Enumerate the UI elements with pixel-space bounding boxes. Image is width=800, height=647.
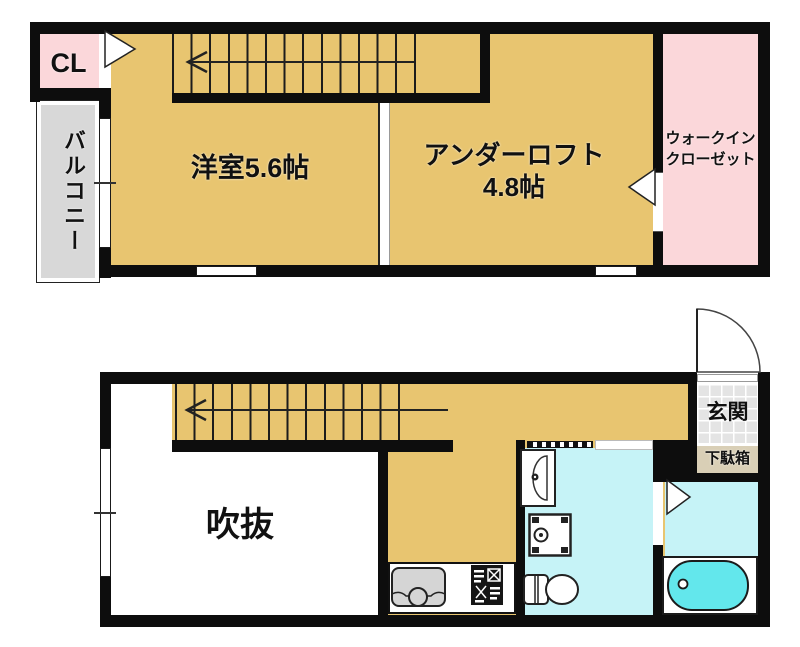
wall-wic (653, 232, 663, 265)
room-wic (663, 34, 758, 265)
label-bedroom: 洋室5.6帖 (130, 153, 370, 184)
accordion-door (527, 441, 593, 448)
stair-2f-wall (172, 93, 490, 103)
window-bedroom-south (196, 266, 257, 276)
label-balcony: バルコニー (54, 116, 86, 266)
wall (30, 22, 770, 34)
wall (758, 22, 770, 277)
wall (99, 248, 111, 278)
stair-1f-wall (172, 440, 453, 452)
kitchen-sink-icon (390, 566, 447, 608)
stair-2f-arrow (180, 48, 420, 76)
partition-bedroom-loft (378, 103, 390, 265)
wall (100, 577, 111, 615)
label-loft-line1: アンダーロフト (399, 141, 629, 171)
label-shoe-cabinet: 下駄箱 (693, 450, 762, 467)
bath-door-opening (653, 482, 663, 545)
cl-door-leaf-icon (102, 28, 138, 70)
floor-plan: CL バルコニー 洋室5.6帖 アンダーロフト 4.8帖 ウォークイン クローゼ… (0, 0, 800, 647)
bath-door-leaf-icon (663, 477, 693, 517)
stair-1f-arrow (180, 396, 452, 424)
wall (100, 372, 697, 384)
washing-machine-icon (528, 513, 572, 557)
washbasin-icon (520, 449, 556, 507)
label-cl: CL (38, 48, 99, 79)
window-tick (94, 512, 116, 514)
bathtub-icon (662, 556, 758, 615)
wall-void-right (378, 440, 388, 615)
label-void: 吹抜 (130, 506, 350, 545)
label-loft-line2: 4.8帖 (399, 173, 629, 203)
label-wic-line1: ウォークイン (661, 130, 760, 147)
window-loft-south (595, 266, 637, 276)
entrance-threshold (697, 374, 758, 382)
window-tick (94, 182, 116, 184)
label-wic-line2: クローゼット (661, 151, 760, 168)
stove-icon (471, 565, 503, 605)
sanitary-door-opening (595, 440, 653, 450)
toilet-icon (522, 573, 580, 606)
wic-door-leaf-icon (626, 166, 658, 208)
label-entrance: 玄関 (695, 401, 760, 425)
wall (100, 372, 111, 448)
stair-2f-wall (480, 34, 490, 93)
entrance-door-arc-icon (690, 303, 775, 375)
wall (99, 88, 111, 118)
wall (100, 615, 770, 627)
room-void (111, 384, 172, 452)
